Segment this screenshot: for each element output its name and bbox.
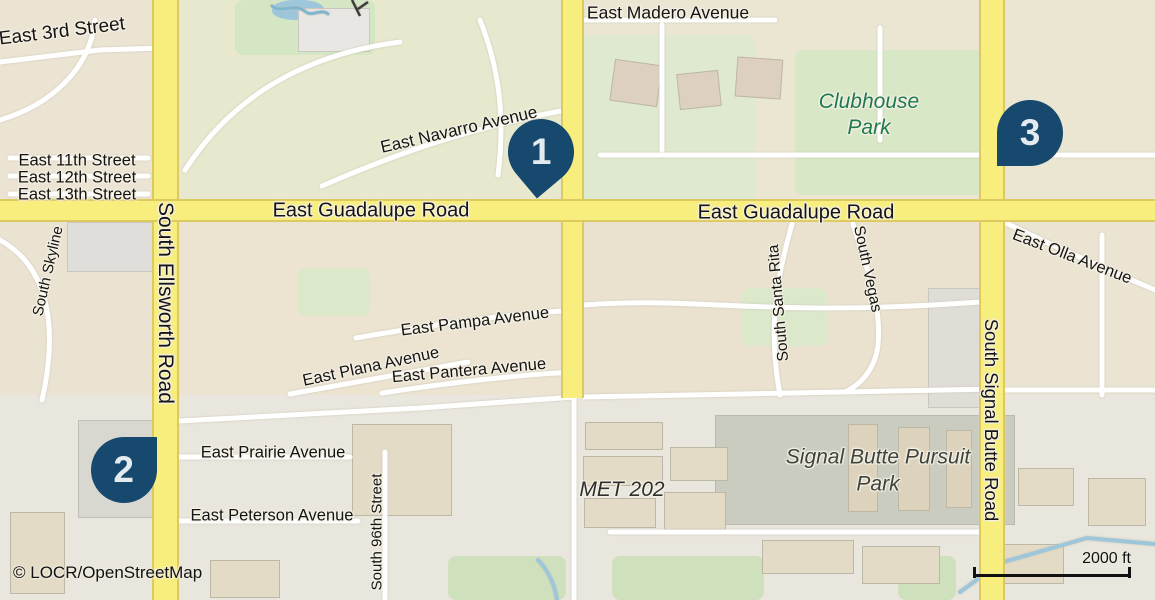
map-pin-1-number: 1 (531, 131, 552, 173)
street-label-south-ellsworth: South Ellsworth Road (153, 202, 177, 404)
scale-bar-label: 2000 ft (1082, 550, 1131, 568)
map-attribution: © LOCR/OpenStreetMap (13, 563, 202, 583)
place-label-met-202: MET 202 (579, 478, 664, 502)
street-label-east-prairie: East Prairie Avenue (201, 444, 346, 463)
street-label-south-96th: South 96th Street (369, 474, 386, 591)
scale-bar-line (973, 574, 1131, 577)
scale-bar: 2000 ft (973, 564, 1131, 580)
street-label-east-13th: East 13th Street (18, 186, 136, 205)
map-pin-3-number: 3 (1020, 112, 1041, 154)
map-pin-2-number: 2 (114, 449, 135, 491)
street-label-guadalupe-west: East Guadalupe Road (273, 200, 470, 223)
street-label-guadalupe-east: East Guadalupe Road (698, 202, 895, 225)
poi-icon (352, 0, 368, 16)
map-canvas[interactable]: East 3rd Street East 11th Street East 12… (0, 0, 1155, 600)
scale-bar-right-tick (1128, 567, 1131, 578)
map-pin-2[interactable]: 2 (91, 437, 157, 503)
street-label-south-signal-butte: South Signal Butte Road (980, 319, 1002, 522)
map-pin-3[interactable]: 3 (997, 100, 1063, 166)
place-label-signal-butte-pursuit-park: Signal Butte Pursuit Park (786, 444, 971, 499)
place-label-clubhouse-park: Clubhouse Park (802, 89, 937, 142)
street-label-east-peterson: East Peterson Avenue (191, 507, 354, 526)
street-label-east-madero: East Madero Avenue (587, 3, 749, 24)
